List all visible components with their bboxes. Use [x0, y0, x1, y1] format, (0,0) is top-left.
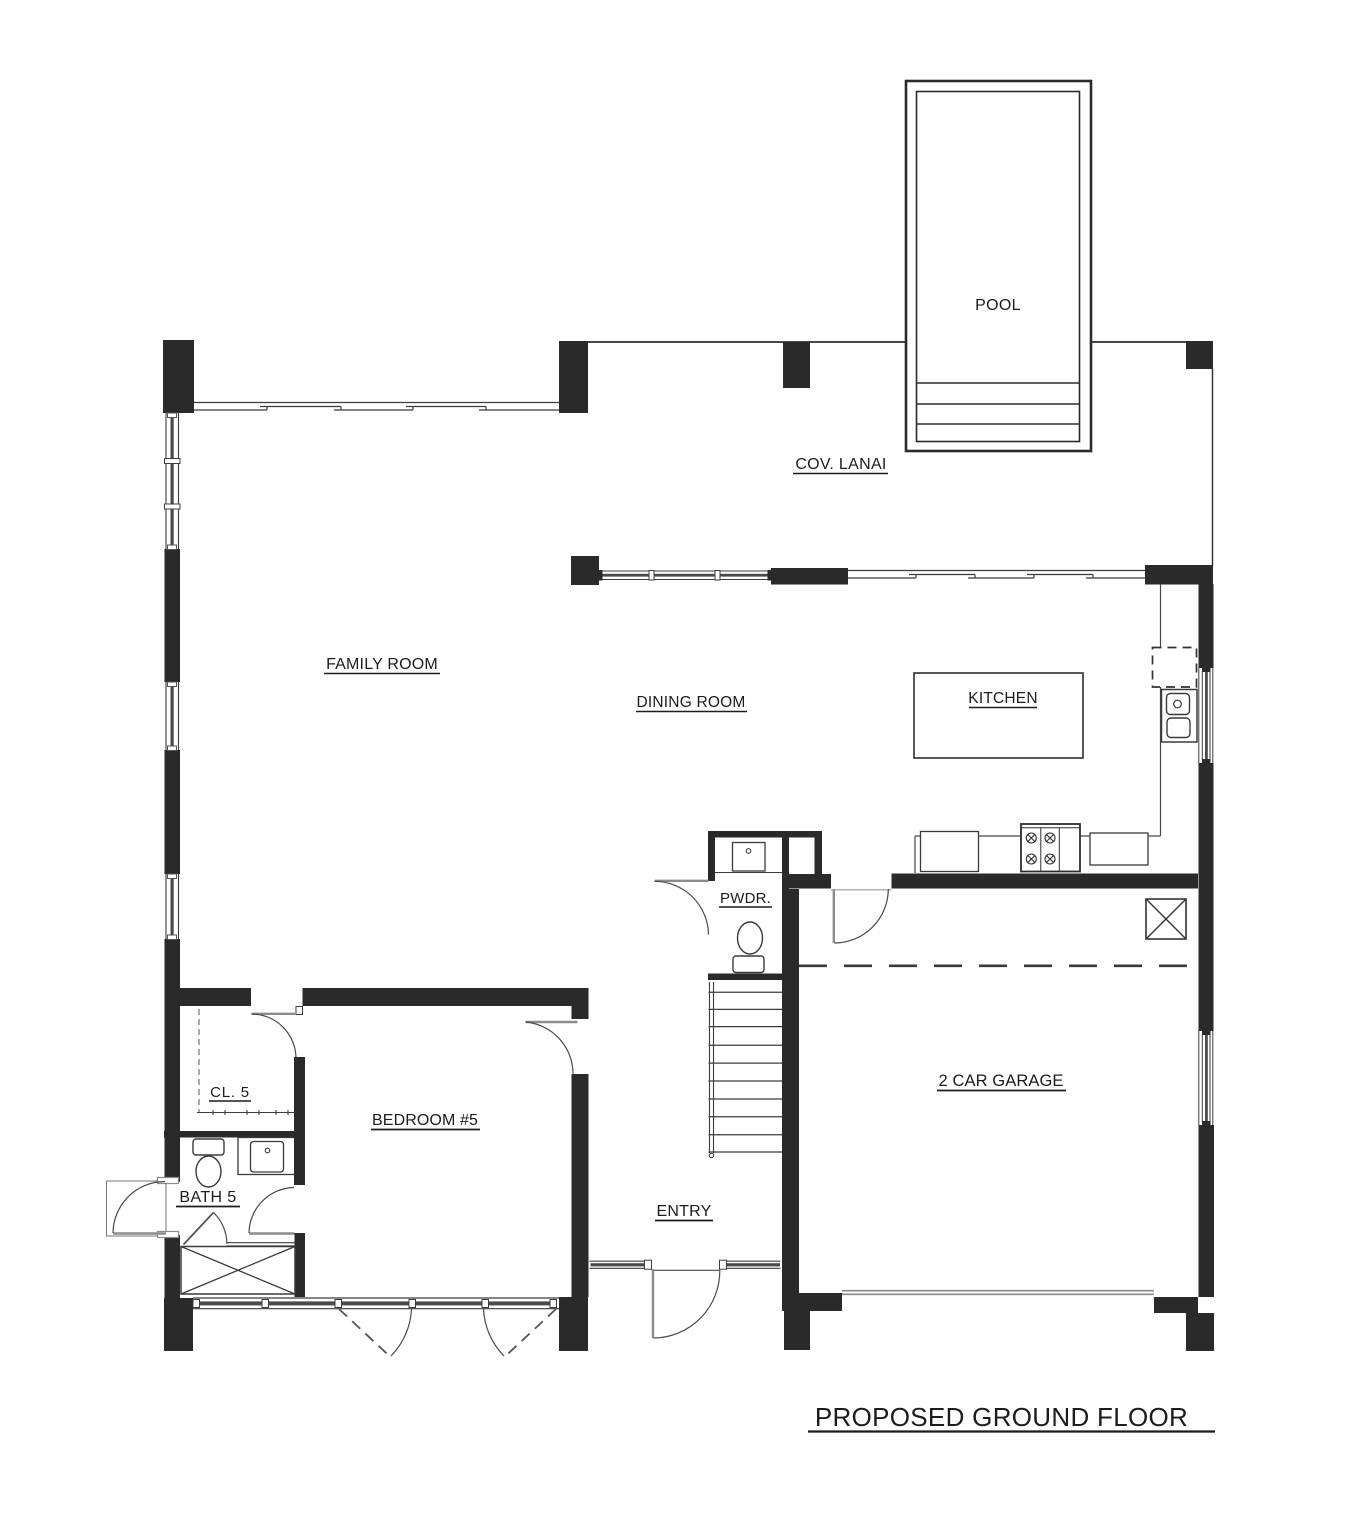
svg-text:CL. 5: CL. 5 [210, 1084, 250, 1101]
svg-text:COV. LANAI: COV. LANAI [795, 456, 886, 473]
svg-text:PWDR.: PWDR. [720, 890, 771, 907]
svg-text:2 CAR GARAGE: 2 CAR GARAGE [939, 1072, 1064, 1090]
svg-text:POOL: POOL [975, 297, 1021, 314]
svg-text:BATH 5: BATH 5 [179, 1189, 236, 1206]
svg-text:ENTRY: ENTRY [657, 1203, 712, 1220]
svg-text:DINING ROOM: DINING ROOM [637, 694, 746, 711]
svg-text:FAMILY ROOM: FAMILY ROOM [326, 656, 438, 673]
svg-text:BEDROOM #5: BEDROOM #5 [372, 1112, 478, 1129]
svg-text:PROPOSED GROUND FLOOR: PROPOSED GROUND FLOOR [815, 1402, 1188, 1432]
svg-text:KITCHEN: KITCHEN [968, 690, 1037, 707]
